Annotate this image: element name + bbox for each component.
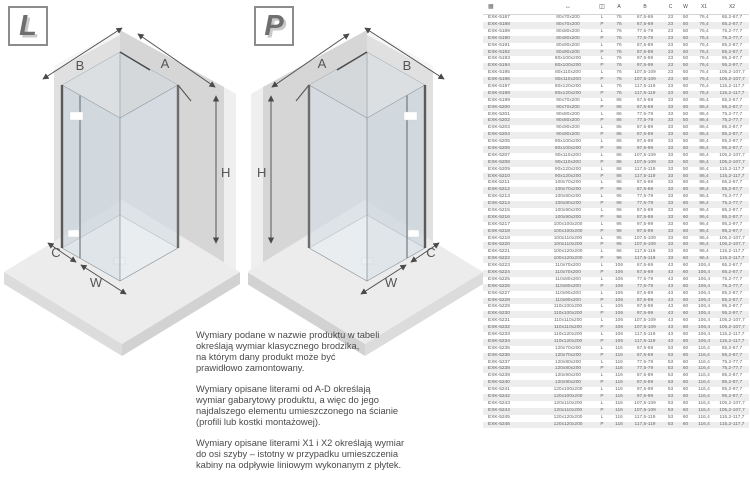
side-variant: L (593, 98, 611, 105)
dim-b: 117,5-119 (627, 249, 663, 256)
dim-x2: 65,2-67,7 (715, 263, 749, 270)
dim-a: 106 (611, 263, 627, 270)
product-code: EXK-5200 (483, 105, 543, 112)
size: 110x70x200 (543, 270, 593, 277)
size: 120x90x200 (543, 373, 593, 380)
dim-x2: 75,2-77,7 (715, 201, 749, 208)
table-row: EXK-5235120x70x200L11667,5-695360116,465… (483, 346, 749, 353)
product-code: EXK-5217 (483, 222, 543, 229)
size: 120x120x200 (543, 422, 593, 429)
dim-a: 96 (611, 249, 627, 256)
size: 80x80x200 (543, 29, 593, 36)
table-row: EXK-5219100x110x200L96107,5-109336096,41… (483, 236, 749, 243)
side-variant: P (593, 325, 611, 332)
dim-c: 33 (663, 167, 678, 174)
side-variant: L (593, 139, 611, 146)
table-row: EXK-5238120x80x200P11677,5-795360116,475… (483, 366, 749, 373)
dim-x2: 95,2-97,7 (715, 394, 749, 401)
dim-a: 76 (611, 49, 627, 56)
dim-w: 50 (678, 56, 693, 63)
product-code: EXK-5214 (483, 201, 543, 208)
dim-x1: 106,4 (693, 291, 715, 298)
product-code: EXK-5190 (483, 36, 543, 43)
dim-x2: 115,2-117,7 (715, 167, 749, 174)
size: 90x120x200 (543, 173, 593, 180)
product-code: EXK-5221 (483, 249, 543, 256)
dim-w: 50 (678, 36, 693, 43)
dim-x1: 76,4 (693, 56, 715, 63)
size: 100x120x200 (543, 256, 593, 263)
table-row: EXK-520190x80x200L8677,5-79335086,475,2-… (483, 111, 749, 118)
dim-w: 60 (678, 215, 693, 222)
dim-b: 77,5-79 (627, 284, 663, 291)
dimension-label-w: W (385, 275, 398, 290)
dim-c: 43 (663, 339, 678, 346)
dim-x2: 65,2-67,7 (715, 270, 749, 277)
product-code: EXK-5225 (483, 277, 543, 284)
product-code: EXK-5198 (483, 91, 543, 98)
dim-c: 43 (663, 332, 678, 339)
dimension-label-h: H (257, 165, 266, 180)
dim-a: 106 (611, 277, 627, 284)
dim-x1: 116,4 (693, 353, 715, 360)
dim-w: 60 (678, 366, 693, 373)
table-row: EXK-518880x70x200P7667,5-69235076,465,2-… (483, 22, 749, 29)
size: 90x120x200 (543, 167, 593, 174)
size: 100x120x200 (543, 249, 593, 256)
dim-w: 60 (678, 373, 693, 380)
dim-x1: 106,4 (693, 325, 715, 332)
table-row: EXK-520090x70x200P8667,5-69335086,465,2-… (483, 105, 749, 112)
dim-b: 77,5-79 (627, 111, 663, 118)
dim-b: 97,5-99 (627, 394, 663, 401)
product-code: EXK-5203 (483, 125, 543, 132)
dim-c: 43 (663, 298, 678, 305)
dim-x2: 95,2-97,7 (715, 222, 749, 229)
dim-x1: 116,4 (693, 408, 715, 415)
dim-c: 33 (663, 256, 678, 263)
dim-x2: 75,2-77,7 (715, 284, 749, 291)
dim-c: 33 (663, 105, 678, 112)
dim-w: 60 (678, 242, 693, 249)
dimension-label-c: C (51, 245, 60, 260)
side-variant: L (593, 194, 611, 201)
table-row: EXK-5221100x120x200L96117,5-119336096,41… (483, 249, 749, 256)
dim-x2: 105,2-107,7 (715, 242, 749, 249)
dimension-label-a: A (161, 56, 170, 71)
dim-w: 60 (678, 298, 693, 305)
size: 90x80x200 (543, 118, 593, 125)
side-variant: L (593, 249, 611, 256)
table-row: EXK-519780x120x200L76117,5-119235076,411… (483, 84, 749, 91)
size: 80x90x200 (543, 43, 593, 50)
dim-x1: 116,4 (693, 394, 715, 401)
column-header-c: C (663, 0, 678, 14)
side-variant: L (593, 401, 611, 408)
side-variant: L (593, 415, 611, 422)
dim-a: 76 (611, 15, 627, 22)
dim-c: 53 (663, 387, 678, 394)
dim-w: 60 (678, 236, 693, 243)
dim-x1: 116,4 (693, 401, 715, 408)
table-row: EXK-519990x70x200L8667,5-69335086,465,2-… (483, 98, 749, 105)
dim-x2: 65,2-67,7 (715, 346, 749, 353)
product-code: EXK-5189 (483, 29, 543, 36)
dim-w: 60 (678, 256, 693, 263)
dim-b: 77,5-79 (627, 118, 663, 125)
side-variant: P (593, 215, 611, 222)
dim-x2: 105,2-107,7 (715, 153, 749, 160)
dim-a: 116 (611, 387, 627, 394)
side-variant: L (593, 70, 611, 77)
dim-a: 96 (611, 242, 627, 249)
dim-b: 87,5-89 (627, 380, 663, 387)
dim-w: 60 (678, 387, 693, 394)
side-variant: L (593, 360, 611, 367)
table-row: EXK-5244120x110x200P116107,5-1095360116,… (483, 408, 749, 415)
side-variant: P (593, 311, 611, 318)
dim-c: 33 (663, 208, 678, 215)
product-code: EXK-5223 (483, 263, 543, 270)
dim-a: 76 (611, 84, 627, 91)
dim-c: 33 (663, 125, 678, 132)
dim-a: 106 (611, 284, 627, 291)
product-code: EXK-5204 (483, 132, 543, 139)
dim-a: 116 (611, 415, 627, 422)
side-variant: P (593, 229, 611, 236)
dim-x2: 115,2-117,7 (715, 249, 749, 256)
dim-x2: 85,2-87,7 (715, 49, 749, 56)
dim-x2: 105,2-107,7 (715, 318, 749, 325)
dim-x1: 76,4 (693, 22, 715, 29)
size: 90x80x200 (543, 111, 593, 118)
dim-x2: 75,2-77,7 (715, 360, 749, 367)
side-variant: L (593, 153, 611, 160)
dim-c: 23 (663, 29, 678, 36)
dim-x1: 106,4 (693, 298, 715, 305)
product-code: EXK-5196 (483, 77, 543, 84)
dim-x2: 95,2-97,7 (715, 387, 749, 394)
dim-c: 33 (663, 249, 678, 256)
table-row: EXK-5245120x120x200L116117,5-1195360116,… (483, 415, 749, 422)
size: 110x100x200 (543, 304, 593, 311)
dim-a: 96 (611, 256, 627, 263)
size: 110x90x200 (543, 291, 593, 298)
dim-c: 43 (663, 325, 678, 332)
table-row: EXK-520890x110x200P86107,5-109335086,410… (483, 160, 749, 167)
side-variant: P (593, 256, 611, 263)
product-code: EXK-5193 (483, 56, 543, 63)
dim-x2: 65,2-67,7 (715, 187, 749, 194)
dim-a: 116 (611, 380, 627, 387)
dim-b: 97,5-99 (627, 229, 663, 236)
note-paragraph-3: Wymiary opisane literami X1 i X2 określa… (196, 438, 474, 471)
dim-c: 43 (663, 263, 678, 270)
dim-x1: 96,4 (693, 187, 715, 194)
version-letter: L (19, 12, 37, 41)
side-variant: L (593, 332, 611, 339)
dim-x1: 86,4 (693, 167, 715, 174)
product-code: EXK-5227 (483, 291, 543, 298)
dim-w: 60 (678, 249, 693, 256)
product-code: EXK-5216 (483, 215, 543, 222)
side-variant: P (593, 118, 611, 125)
size: 100x70x200 (543, 180, 593, 187)
dim-x1: 96,4 (693, 236, 715, 243)
size: 100x110x200 (543, 242, 593, 249)
dim-x1: 106,4 (693, 339, 715, 346)
table-row: EXK-5215100x90x200L9687,5-89336096,485,2… (483, 208, 749, 215)
dim-w: 50 (678, 70, 693, 77)
dim-x1: 96,4 (693, 180, 715, 187)
product-code: EXK-5187 (483, 15, 543, 22)
product-code: EXK-5188 (483, 22, 543, 29)
dim-b: 117,5-119 (627, 422, 663, 429)
dim-x1: 106,4 (693, 277, 715, 284)
size: 100x100x200 (543, 229, 593, 236)
dim-x1: 86,4 (693, 173, 715, 180)
dim-x2: 115,2-117,7 (715, 422, 749, 429)
dim-c: 23 (663, 77, 678, 84)
dim-a: 86 (611, 132, 627, 139)
dim-c: 33 (663, 132, 678, 139)
table-row: EXK-5217100x100x200L9697,5-99336096,495,… (483, 222, 749, 229)
dim-b: 107,5-109 (627, 325, 663, 332)
dim-w: 60 (678, 415, 693, 422)
dim-a: 116 (611, 346, 627, 353)
dim-x2: 75,2-77,7 (715, 36, 749, 43)
dim-b: 117,5-119 (627, 332, 663, 339)
product-code: EXK-5194 (483, 63, 543, 70)
side-variant: P (593, 298, 611, 305)
side-variant: L (593, 111, 611, 118)
dim-a: 106 (611, 270, 627, 277)
dim-c: 33 (663, 180, 678, 187)
dim-c: 53 (663, 408, 678, 415)
dim-x1: 86,4 (693, 139, 715, 146)
dim-b: 97,5-99 (627, 311, 663, 318)
table-row: EXK-5237120x80x200L11677,5-795360116,475… (483, 360, 749, 367)
table-row: EXK-519480x100x200P7697,5-99235076,495,2… (483, 63, 749, 70)
dim-x2: 85,2-87,7 (715, 291, 749, 298)
dim-w: 50 (678, 22, 693, 29)
dim-x1: 116,4 (693, 366, 715, 373)
dim-w: 50 (678, 29, 693, 36)
table-row: EXK-518980x80x200L7677,5-79235076,475,2-… (483, 29, 749, 36)
dim-w: 50 (678, 167, 693, 174)
dimension-label-a: A (318, 56, 327, 71)
dim-b: 87,5-89 (627, 43, 663, 50)
product-code: EXK-5191 (483, 43, 543, 50)
dim-w: 50 (678, 125, 693, 132)
table-row: EXK-5231110x110x200L106107,5-1094360106,… (483, 318, 749, 325)
table-row: EXK-5246120x120x200P116117,5-1195360116,… (483, 422, 749, 429)
dim-c: 43 (663, 291, 678, 298)
size: 120x90x200 (543, 380, 593, 387)
table-row: EXK-520990x120x200L86117,5-119335086,411… (483, 167, 749, 174)
dim-w: 50 (678, 15, 693, 22)
product-code: EXK-5241 (483, 387, 543, 394)
dim-b: 97,5-99 (627, 222, 663, 229)
size: 110x110x200 (543, 318, 593, 325)
product-code: EXK-5195 (483, 70, 543, 77)
dim-w: 60 (678, 346, 693, 353)
dim-b: 77,5-79 (627, 201, 663, 208)
dim-x1: 76,4 (693, 29, 715, 36)
dim-x2: 75,2-77,7 (715, 277, 749, 284)
product-code: EXK-5239 (483, 373, 543, 380)
dim-a: 86 (611, 125, 627, 132)
dim-x2: 65,2-67,7 (715, 98, 749, 105)
dim-x1: 76,4 (693, 84, 715, 91)
dim-a: 86 (611, 139, 627, 146)
size: 100x90x200 (543, 215, 593, 222)
size: 110x70x200 (543, 263, 593, 270)
dim-w: 60 (678, 180, 693, 187)
dim-w: 60 (678, 291, 693, 298)
dim-c: 23 (663, 70, 678, 77)
size: 110x80x200 (543, 284, 593, 291)
product-code: EXK-5201 (483, 111, 543, 118)
size: 80x80x200 (543, 36, 593, 43)
product-code: EXK-5219 (483, 236, 543, 243)
dim-w: 50 (678, 43, 693, 50)
dim-x2: 115,2-117,7 (715, 91, 749, 98)
dim-x1: 106,4 (693, 304, 715, 311)
dim-c: 43 (663, 277, 678, 284)
dim-a: 76 (611, 22, 627, 29)
dim-a: 106 (611, 339, 627, 346)
product-code: EXK-5206 (483, 146, 543, 153)
side-variant: P (593, 270, 611, 277)
dim-b: 107,5-109 (627, 77, 663, 84)
spec-table-body: EXK-518780x70x200L7667,5-69235076,465,2-… (483, 15, 749, 428)
wall-outer-edge (224, 87, 236, 282)
dim-b: 107,5-109 (627, 70, 663, 77)
dim-c: 23 (663, 84, 678, 91)
dim-x1: 86,4 (693, 132, 715, 139)
size: 110x90x200 (543, 298, 593, 305)
dim-w: 60 (678, 284, 693, 291)
dim-x1: 76,4 (693, 91, 715, 98)
dim-x1: 96,4 (693, 249, 715, 256)
dim-x2: 95,2-97,7 (715, 63, 749, 70)
table-row: EXK-5211100x70x200L9667,5-69336096,465,2… (483, 180, 749, 187)
dim-a: 116 (611, 373, 627, 380)
dim-w: 60 (678, 187, 693, 194)
table-row: EXK-5229110x100x200L10697,5-994360106,49… (483, 304, 749, 311)
dim-b: 117,5-119 (627, 91, 663, 98)
size: 120x70x200 (543, 346, 593, 353)
dim-x2: 115,2-117,7 (715, 339, 749, 346)
dim-c: 43 (663, 304, 678, 311)
product-code: EXK-5236 (483, 353, 543, 360)
side-variant: P (593, 160, 611, 167)
dim-w: 50 (678, 160, 693, 167)
dim-b: 67,5-69 (627, 346, 663, 353)
table-row: EXK-5218100x100x200P9697,5-99336096,495,… (483, 229, 749, 236)
side-variant: P (593, 77, 611, 84)
table-row: EXK-5234110x120x200P106117,5-1194360106,… (483, 339, 749, 346)
dim-x2: 115,2-117,7 (715, 256, 749, 263)
size: 80x100x200 (543, 63, 593, 70)
size: 80x90x200 (543, 49, 593, 56)
dimension-label-w: W (90, 275, 103, 290)
product-code: EXK-5215 (483, 208, 543, 215)
dim-x1: 116,4 (693, 373, 715, 380)
side-variant: L (593, 56, 611, 63)
product-code: EXK-5240 (483, 380, 543, 387)
side-variant: P (593, 36, 611, 43)
side-variant: L (593, 29, 611, 36)
side-variant: L (593, 277, 611, 284)
dim-x1: 106,4 (693, 311, 715, 318)
size: 120x110x200 (543, 401, 593, 408)
dim-b: 97,5-99 (627, 387, 663, 394)
dim-w: 50 (678, 139, 693, 146)
side-variant: P (593, 422, 611, 429)
dim-x1: 96,4 (693, 229, 715, 236)
dim-a: 116 (611, 394, 627, 401)
dim-b: 97,5-99 (627, 56, 663, 63)
dim-b: 87,5-89 (627, 125, 663, 132)
dim-b: 87,5-89 (627, 373, 663, 380)
dim-c: 23 (663, 91, 678, 98)
product-code: EXK-5243 (483, 401, 543, 408)
dim-x2: 85,2-87,7 (715, 373, 749, 380)
dim-x1: 96,4 (693, 242, 715, 249)
dim-a: 76 (611, 36, 627, 43)
column-header-b: B (627, 0, 663, 14)
dim-w: 60 (678, 222, 693, 229)
dim-w: 60 (678, 311, 693, 318)
dim-w: 60 (678, 353, 693, 360)
size: 120x110x200 (543, 408, 593, 415)
dim-a: 76 (611, 29, 627, 36)
note-paragraph-2: Wymiary opisane literami od A-D określaj… (196, 384, 474, 428)
size: 80x110x200 (543, 70, 593, 77)
dimension-notes: Wymiary podane w nazwie produktu w tabel… (196, 330, 474, 481)
dim-b: 87,5-89 (627, 291, 663, 298)
dim-w: 50 (678, 146, 693, 153)
side-variant: L (593, 43, 611, 50)
dim-a: 86 (611, 153, 627, 160)
size: 80x110x200 (543, 77, 593, 84)
table-row: EXK-5213100x80x200L9677,5-79336096,475,2… (483, 194, 749, 201)
dim-b: 77,5-79 (627, 366, 663, 373)
dim-x2: 105,2-107,7 (715, 77, 749, 84)
side-variant: P (593, 63, 611, 70)
dim-b: 97,5-99 (627, 63, 663, 70)
dim-a: 96 (611, 222, 627, 229)
dim-c: 33 (663, 222, 678, 229)
dim-c: 33 (663, 194, 678, 201)
dim-a: 86 (611, 173, 627, 180)
dim-c: 33 (663, 187, 678, 194)
dim-c: 33 (663, 139, 678, 146)
dim-a: 96 (611, 201, 627, 208)
dim-x1: 76,4 (693, 43, 715, 50)
dim-x1: 96,4 (693, 215, 715, 222)
dim-x2: 85,2-87,7 (715, 132, 749, 139)
page: { "diagrams": { "left": { "badge": "L", … (0, 0, 750, 457)
product-code: EXK-5192 (483, 49, 543, 56)
side-variant: L (593, 180, 611, 187)
side-variant: L (593, 291, 611, 298)
glass-side-panel (309, 85, 367, 281)
size: 90x90x200 (543, 125, 593, 132)
dim-b: 97,5-99 (627, 146, 663, 153)
